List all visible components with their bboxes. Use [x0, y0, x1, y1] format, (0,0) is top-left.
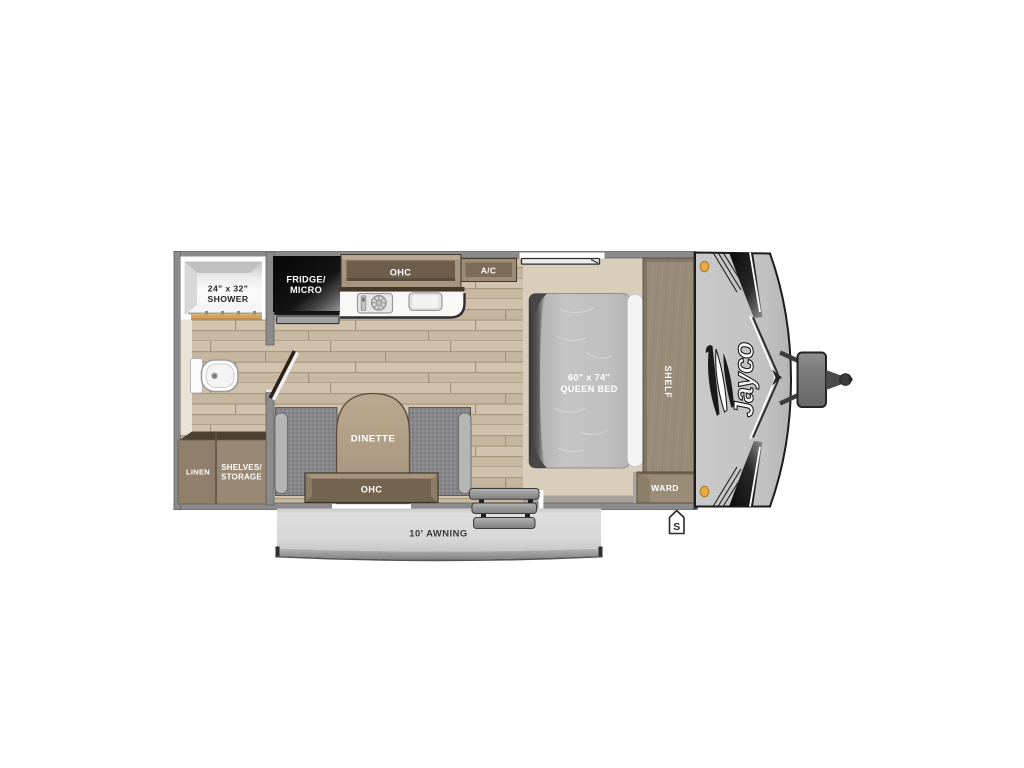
- svg-text:QUEEN BED: QUEEN BED: [560, 384, 617, 394]
- svg-text:10' AWNING: 10' AWNING: [409, 528, 467, 539]
- svg-text:A/C: A/C: [481, 266, 497, 276]
- svg-text:24" x 32": 24" x 32": [208, 284, 248, 294]
- svg-text:FRIDGE/: FRIDGE/: [286, 275, 326, 285]
- svg-text:LINEN: LINEN: [186, 468, 210, 477]
- svg-text:60" x 74": 60" x 74": [568, 373, 610, 383]
- svg-text:OHC: OHC: [390, 268, 412, 278]
- svg-text:DINETTE: DINETTE: [351, 434, 396, 445]
- svg-text:MICRO: MICRO: [290, 285, 322, 295]
- svg-text:SHELF: SHELF: [663, 366, 673, 399]
- svg-text:S: S: [673, 521, 680, 533]
- svg-text:OHC: OHC: [361, 485, 383, 495]
- svg-text:WARD: WARD: [651, 483, 679, 493]
- svg-text:SHELVES/: SHELVES/: [221, 463, 262, 472]
- svg-text:STORAGE: STORAGE: [221, 473, 262, 482]
- svg-text:SHOWER: SHOWER: [207, 294, 248, 304]
